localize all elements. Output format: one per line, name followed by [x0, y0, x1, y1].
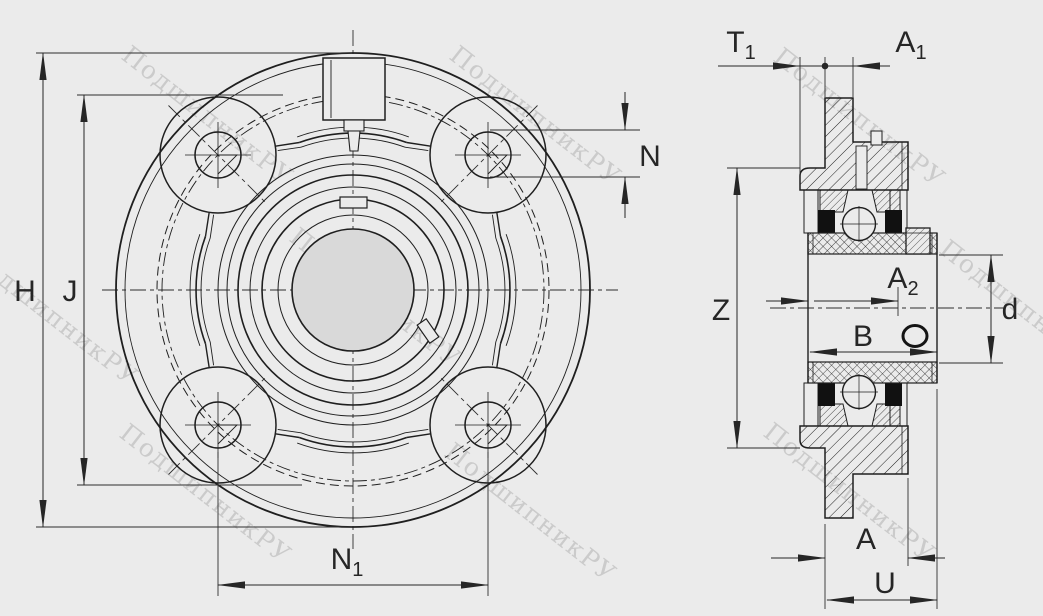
dim-label-h: H: [14, 275, 36, 308]
dim-label-a: A: [856, 523, 876, 556]
dim-label-d: d: [1002, 293, 1019, 326]
dim-label-t1: T1: [726, 26, 755, 64]
set-screw-hole: [903, 326, 927, 347]
dim-label-u: U: [874, 567, 896, 600]
front-cover-lower: [804, 383, 818, 426]
watermark-text: ПодшипникРУ: [439, 437, 622, 589]
dim-label-b: B: [853, 320, 873, 353]
grease-passage: [856, 146, 867, 189]
grease-nipple: [871, 131, 882, 145]
dim-label-j: J: [63, 275, 78, 308]
grease-fitting: [323, 58, 385, 151]
watermark-text: ПодшипникРУ: [444, 40, 627, 192]
lube-notch: [340, 197, 367, 208]
dim-label-n1: N1: [331, 543, 364, 581]
technical-drawing: ПодшипникРУ ПодшипникРУ ПодшипникРУ Подш…: [0, 0, 1043, 616]
dim-label-z: Z: [712, 294, 730, 327]
dim-label-a2: A2: [887, 262, 918, 300]
watermark-text: ПодшипникРУ: [0, 240, 144, 392]
dim-label-a1: A1: [895, 26, 926, 64]
watermark-text: ПодшипникРУ: [116, 40, 299, 192]
shaft-bore: [292, 229, 414, 351]
front-cover-upper: [804, 190, 818, 233]
dimension-Z: Z: [712, 168, 800, 448]
set-screw: [906, 228, 930, 254]
dim-label-n: N: [639, 140, 661, 173]
drawing-canvas: ПодшипникРУ ПодшипникРУ ПодшипникРУ Подш…: [0, 0, 1043, 616]
bolt-hole-top-right: [430, 97, 546, 213]
watermark-text: ПодшипникРУ: [114, 418, 297, 570]
